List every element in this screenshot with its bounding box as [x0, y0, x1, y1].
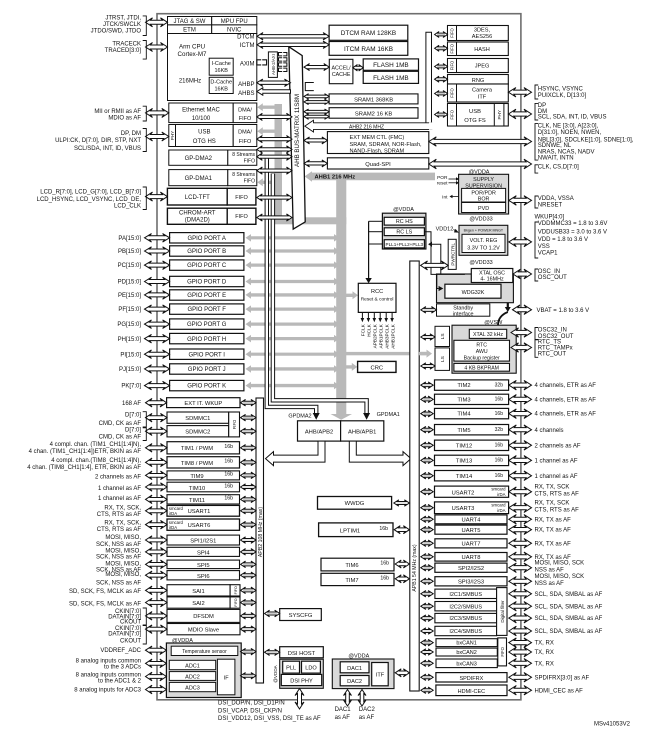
svg-text:I2C3/SMBUS: I2C3/SMBUS [449, 616, 482, 622]
svg-text:NSS as AF: NSS as AF [535, 581, 565, 587]
svg-text:FIFO: FIFO [234, 586, 238, 594]
svg-text:SDMMC2: SDMMC2 [185, 430, 210, 436]
svg-text:HASH: HASH [474, 47, 490, 53]
svg-text:CMD, CK as AF: CMD, CK as AF [99, 421, 142, 427]
svg-text:DAC1: DAC1 [335, 707, 352, 713]
svg-text:CHROM-ART: CHROM-ART [179, 211, 216, 217]
svg-text:PE[15:0]: PE[15:0] [118, 293, 141, 299]
svg-text:SCK, NSS as AF: SCK, NSS as AF [96, 555, 141, 561]
svg-text:@VDDA: @VDDA [393, 207, 414, 213]
svg-text:PVD: PVD [478, 206, 489, 212]
svg-text:JTRST, JTDI,: JTRST, JTDI, [105, 15, 141, 21]
svg-text:TIM8 / PWM: TIM8 / PWM [181, 461, 213, 467]
svg-text:ACCEL/: ACCEL/ [332, 65, 352, 71]
svg-text:USART6: USART6 [188, 523, 211, 529]
svg-text:4 channels, ETR as AF: 4 channels, ETR as AF [535, 398, 597, 404]
svg-text:16KB: 16KB [214, 87, 228, 93]
svg-text:GPDMA2: GPDMA2 [288, 413, 311, 419]
svg-text:DSI_VDD12, DSI_VSS, DSI_TE as: DSI_VDD12, DSI_VSS, DSI_TE as AF [218, 716, 321, 722]
svg-text:ADC3: ADC3 [185, 686, 200, 692]
svg-text:SCL, SDA, INT, ID, VBUS: SCL, SDA, INT, ID, VBUS [538, 114, 607, 120]
svg-text:VBAT = 1.8 to 3.6 V: VBAT = 1.8 to 3.6 V [537, 308, 590, 314]
svg-text:PI[15:0]: PI[15:0] [120, 352, 141, 358]
svg-text:JTDO/SWD, JTDO: JTDO/SWD, JTDO [91, 28, 142, 34]
svg-text:SRAM1 368KB: SRAM1 368KB [354, 97, 393, 103]
svg-text:VDDREF_ADC: VDDREF_ADC [100, 648, 141, 654]
svg-text:RX, TX, SCK,: RX, TX, SCK, [104, 506, 141, 512]
svg-text:MOSI, MISO,: MOSI, MISO, [105, 561, 141, 567]
svg-text:16b: 16b [495, 411, 504, 417]
svg-text:TIM12: TIM12 [456, 443, 472, 449]
svg-text:PH[15:0]: PH[15:0] [118, 337, 142, 343]
svg-text:FLASH 1MB: FLASH 1MB [373, 75, 409, 82]
svg-text:USART3: USART3 [452, 506, 475, 512]
svg-text:Int: Int [442, 194, 448, 200]
svg-text:Ethernet MAC: Ethernet MAC [182, 108, 220, 114]
svg-text:MOSI, MISO, SCK: MOSI, MISO, SCK [535, 561, 585, 567]
svg-text:FIFO: FIFO [239, 139, 252, 145]
svg-text:16b: 16b [495, 473, 504, 479]
svg-text:WDG32K: WDG32K [462, 290, 485, 296]
svg-text:GP-DMA2: GP-DMA2 [185, 156, 213, 162]
svg-text:SCL, SDA, SMBAL as AF: SCL, SDA, SMBAL as AF [535, 592, 603, 598]
svg-text:1 channel as AF: 1 channel as AF [535, 459, 578, 465]
svg-text:GPIO PORT A: GPIO PORT A [187, 236, 225, 242]
svg-text:SYSCFG: SYSCFG [289, 613, 313, 619]
svg-text:16b: 16b [495, 443, 504, 449]
svg-text:ITCM RAM 16KB: ITCM RAM 16KB [344, 46, 393, 53]
svg-text:16KB: 16KB [214, 68, 228, 74]
svg-text:TRACECK: TRACECK [112, 41, 141, 47]
svg-text:CACHE: CACHE [332, 72, 351, 78]
svg-text:DSI_VCAP, DSI_CKP/N: DSI_VCAP, DSI_CKP/N [218, 708, 282, 714]
svg-text:PJ[15:0]: PJ[15:0] [119, 367, 141, 373]
svg-text:3DES,: 3DES, [474, 28, 491, 34]
svg-text:PB[15:0]: PB[15:0] [118, 249, 141, 255]
svg-text:SPI6: SPI6 [197, 574, 210, 580]
svg-text:AWU: AWU [476, 349, 488, 355]
svg-text:GPDMA1: GPDMA1 [377, 412, 400, 418]
svg-text:SCK, NSS as AF: SCK, NSS as AF [96, 580, 141, 586]
svg-text:USB: USB [198, 130, 210, 136]
svg-text:reset: reset [437, 180, 448, 186]
svg-text:MOSI, MISO,: MOSI, MISO, [105, 548, 141, 554]
svg-text:SRAM, SDRAM, NOR-Flash,: SRAM, SDRAM, NOR-Flash, [350, 142, 423, 148]
svg-text:irDA: irDA [497, 492, 505, 497]
svg-text:AHBS: AHBS [238, 91, 254, 97]
svg-text:AHB/APB2: AHB/APB2 [305, 429, 333, 435]
svg-text:VDD12: VDD12 [436, 227, 454, 233]
svg-text:DMA/: DMA/ [238, 108, 252, 114]
svg-text:TIM13: TIM13 [456, 459, 472, 465]
svg-text:SAI1: SAI1 [192, 589, 205, 595]
svg-text:AHB-2/AXI: AHB-2/AXI [271, 54, 276, 75]
svg-text:CTS, RTS as AF: CTS, RTS as AF [97, 527, 142, 533]
svg-text:irDA: irDA [169, 511, 177, 516]
svg-text:OSC32_IN: OSC32_IN [538, 328, 567, 334]
svg-text:4 chan. (TIM8_CH1[1:4], ETR, B: 4 chan. (TIM8_CH1[1:4], ETR, BKIN as AF [27, 465, 141, 471]
svg-text:MOSI, MISO,: MOSI, MISO, [105, 535, 141, 541]
svg-text:I2C2/SMBUS: I2C2/SMBUS [449, 604, 482, 610]
svg-text:TIM7: TIM7 [345, 578, 358, 584]
svg-text:4 KB BKPRAM: 4 KB BKPRAM [464, 365, 499, 371]
svg-text:RX, TX as AF: RX, TX as AF [535, 517, 572, 523]
svg-text:FIFO: FIFO [244, 178, 255, 184]
svg-text:PHY: PHY [170, 131, 175, 140]
svg-text:SCL, SDA, SMBAL as AF: SCL, SDA, SMBAL as AF [535, 616, 603, 622]
svg-text:10/100: 10/100 [192, 116, 211, 122]
svg-text:4- 16MHz: 4- 16MHz [480, 277, 504, 283]
svg-text:FIFO: FIFO [500, 646, 505, 656]
svg-text:Digital filter: Digital filter [500, 600, 505, 623]
svg-text:as AF: as AF [359, 715, 375, 721]
svg-text:DSI PHY: DSI PHY [290, 679, 313, 685]
svg-text:FIFO: FIFO [450, 60, 455, 70]
svg-text:PF[15:0]: PF[15:0] [118, 307, 141, 313]
svg-text:16b: 16b [379, 526, 388, 532]
svg-text:LCD_HSYNC, LCD_VSYNC, LCD_DE,: LCD_HSYNC, LCD_VSYNC, LCD_DE, [37, 197, 142, 203]
svg-text:MDIO Slave: MDIO Slave [188, 628, 219, 634]
svg-text:1 channel as AF: 1 channel as AF [535, 474, 578, 480]
svg-text:DAC2: DAC2 [359, 707, 376, 713]
svg-text:Camera: Camera [472, 87, 493, 93]
svg-text:CRC: CRC [371, 366, 384, 372]
svg-text:AHB/APB1: AHB/APB1 [348, 429, 376, 435]
svg-text:UART5: UART5 [462, 528, 481, 534]
svg-text:Backup register: Backup register [464, 355, 500, 361]
svg-text:TIM14: TIM14 [456, 474, 473, 480]
svg-text:DSI HOST: DSI HOST [288, 651, 316, 657]
svg-text:HCLK: HCLK [367, 323, 372, 336]
svg-text:UART7: UART7 [462, 541, 481, 547]
svg-text:Temperature sensor: Temperature sensor [182, 649, 227, 655]
svg-text:16b: 16b [224, 459, 233, 465]
svg-text:VDD = 1.8 to 3.6 V: VDD = 1.8 to 3.6 V [538, 237, 588, 243]
svg-text:VCAP1: VCAP1 [538, 251, 558, 257]
svg-text:2 channels as AF: 2 channels as AF [95, 475, 141, 481]
svg-text:GPIO PORT B: GPIO PORT B [187, 249, 226, 255]
svg-text:1 channel as AF: 1 channel as AF [98, 496, 141, 502]
svg-text:LS: LS [440, 356, 446, 362]
svg-text:TIM4: TIM4 [457, 412, 471, 418]
svg-text:CKOUT: CKOUT [120, 638, 141, 644]
svg-text:JTAG & SW: JTAG & SW [174, 19, 206, 25]
svg-text:APB2PCLK: APB2PCLK [373, 323, 378, 348]
svg-text:XTAL OSC: XTAL OSC [479, 270, 505, 276]
svg-text:16b: 16b [495, 397, 504, 403]
svg-text:GPIO PORT J: GPIO PORT J [188, 367, 226, 373]
svg-text:USB: USB [469, 109, 481, 115]
svg-text:I2C1/SMBUS: I2C1/SMBUS [449, 592, 482, 598]
svg-text:PUIXCLK, D[13:0]: PUIXCLK, D[13:0] [538, 93, 587, 99]
svg-text:8 Streams: 8 Streams [232, 172, 255, 178]
svg-text:ETM: ETM [183, 28, 196, 34]
svg-text:PD[15:0]: PD[15:0] [118, 280, 142, 286]
svg-text:PLL: PLL [286, 666, 296, 672]
svg-text:PG[15:0]: PG[15:0] [117, 322, 141, 328]
svg-text:SAI2: SAI2 [192, 601, 205, 607]
svg-text:as AF: as AF [335, 715, 351, 721]
svg-text:NAND-Flash, SDRAM: NAND-Flash, SDRAM [350, 148, 405, 154]
svg-text:3.3V TO 1.2V: 3.3V TO 1.2V [467, 245, 500, 251]
svg-text:bxCAN3: bxCAN3 [456, 661, 476, 667]
svg-text:SCL/SDA, INT, ID, VBUS: SCL/SDA, INT, ID, VBUS [74, 146, 141, 152]
svg-text:16b: 16b [380, 561, 389, 567]
svg-text:irDA: irDA [497, 508, 505, 513]
svg-text:WWDG: WWDG [345, 501, 365, 507]
svg-text:EXT IT. WKUP: EXT IT. WKUP [184, 401, 222, 407]
svg-text:FCLK: FCLK [361, 323, 366, 336]
svg-text:NSS as AF: NSS as AF [535, 567, 565, 573]
svg-text:AHB3PCLK: AHB3PCLK [384, 323, 389, 348]
svg-text:ITF: ITF [376, 673, 385, 679]
svg-text:NWAIT, INTN: NWAIT, INTN [538, 155, 574, 161]
svg-text:SCL, SDA, SMBAL as AF: SCL, SDA, SMBAL as AF [535, 629, 603, 635]
svg-text:LCD-TFT: LCD-TFT [185, 195, 210, 201]
svg-text:TIM10: TIM10 [189, 486, 205, 492]
svg-text:GPIO PORT E: GPIO PORT E [187, 293, 226, 299]
svg-text:Reset & control: Reset & control [361, 297, 394, 303]
svg-text:Quad-SPI: Quad-SPI [365, 162, 391, 168]
svg-text:MOSI, MISO,: MOSI, MISO, [105, 572, 141, 578]
svg-text:TX, RX: TX, RX [535, 641, 554, 647]
svg-text:DAC2: DAC2 [347, 679, 362, 685]
svg-text:TIM2: TIM2 [457, 383, 470, 389]
svg-text:ADC2: ADC2 [185, 674, 200, 680]
svg-text:AES256: AES256 [472, 34, 493, 40]
svg-text:16b: 16b [224, 444, 233, 450]
svg-text:DATAIN[7:0]: DATAIN[7:0] [108, 631, 141, 637]
svg-text:16b: 16b [224, 484, 233, 490]
svg-text:PLL1+PLL2+PLL3: PLL1+PLL2+PLL3 [386, 242, 424, 247]
svg-text:smcard: smcard [491, 486, 506, 491]
svg-text:ULPI:CK, D[7:0], DIR, STP, NXT: ULPI:CK, D[7:0], DIR, STP, NXT [55, 138, 141, 144]
svg-text:SPI4: SPI4 [197, 550, 210, 556]
svg-text:AHB2 216 MHZ: AHB2 216 MHZ [349, 125, 384, 131]
svg-text:SDMMC1: SDMMC1 [185, 416, 210, 422]
svg-text:1 channel as AF: 1 channel as AF [98, 486, 141, 492]
svg-text:SPDIFRX: SPDIFRX [459, 676, 483, 682]
svg-text:8 analog inputs common: 8 analog inputs common [76, 659, 141, 665]
svg-text:SCL, SDA, SMBAL as AF: SCL, SDA, SMBAL as AF [535, 604, 603, 610]
svg-text:irDA: irDA [169, 525, 177, 530]
svg-text:FIFO: FIFO [450, 27, 455, 37]
svg-text:LDO: LDO [305, 666, 317, 672]
svg-text:AHBP: AHBP [238, 82, 254, 88]
svg-text:SPI5: SPI5 [197, 563, 210, 569]
svg-text:GPIO PORT I: GPIO PORT I [188, 352, 225, 358]
svg-text:16b: 16b [224, 496, 233, 502]
svg-text:CTS, RTS as AF: CTS, RTS as AF [97, 512, 142, 518]
svg-text:@VDDA: @VDDA [273, 664, 278, 682]
svg-text:SDNWE, NL: SDNWE, NL [538, 143, 572, 149]
svg-text:4 chan. (TIM1_CH1[1:4])ETR, BK: 4 chan. (TIM1_CH1[1:4])ETR, BKIN as AF [29, 449, 142, 455]
svg-text:RX, TX as AF: RX, TX as AF [535, 528, 572, 534]
svg-text:FIFO: FIFO [235, 195, 248, 201]
svg-text:ITF: ITF [478, 95, 487, 101]
svg-text:RNG: RNG [472, 78, 484, 84]
svg-text:SPI3/I2S3: SPI3/I2S3 [458, 579, 484, 585]
svg-text:RX, TX as AF: RX, TX as AF [535, 541, 572, 547]
svg-text:4 compl. chan.(TIM8_CH1[1:4]N): 4 compl. chan.(TIM8_CH1[1:4]N), [51, 458, 141, 464]
svg-text:PA[15:0]: PA[15:0] [118, 236, 141, 242]
svg-text:APB2 108 MHz (max): APB2 108 MHz (max) [258, 507, 264, 557]
svg-text:USART2: USART2 [452, 490, 475, 496]
svg-text:XTAL 32 kHz: XTAL 32 kHz [473, 332, 503, 338]
svg-text:FIFO: FIFO [239, 116, 252, 122]
svg-text:MII or RMII as AF: MII or RMII as AF [94, 109, 141, 115]
svg-text:POR/PDR: POR/PDR [471, 190, 496, 196]
svg-text:AHB1 216 MHz: AHB1 216 MHz [315, 175, 356, 181]
svg-text:POR: POR [437, 175, 448, 181]
svg-text:4 compl. chan. (TIM1_CH1[1:4]N: 4 compl. chan. (TIM1_CH1[1:4]N), [50, 442, 142, 448]
svg-text:8 Streams: 8 Streams [232, 152, 255, 158]
svg-text:to the ADC1 & 2: to the ADC1 & 2 [98, 679, 142, 685]
svg-text:bxCAN2: bxCAN2 [456, 650, 476, 656]
svg-text:GP-DMA1: GP-DMA1 [185, 176, 213, 182]
svg-text:USART1: USART1 [188, 509, 211, 515]
svg-text:FIFO: FIFO [450, 43, 455, 53]
svg-text:TRACED[3:0]: TRACED[3:0] [105, 48, 142, 54]
svg-text:smcard: smcard [491, 502, 506, 507]
svg-text:D[7:0]: D[7:0] [125, 427, 141, 433]
svg-text:FIFO: FIFO [244, 158, 255, 164]
svg-text:IF: IF [224, 675, 230, 681]
svg-text:HDMI-CEC: HDMI-CEC [458, 689, 486, 695]
svg-text:RX, TX, SCK: RX, TX, SCK [535, 485, 570, 491]
svg-text:GPIO PORT K: GPIO PORT K [187, 384, 226, 390]
svg-text:FIFO: FIFO [232, 419, 237, 429]
svg-text:DTCM RAM 128KB: DTCM RAM 128KB [341, 30, 396, 37]
svg-text:MSv41053V2: MSv41053V2 [594, 722, 631, 728]
svg-text:216MHz: 216MHz [179, 78, 201, 84]
svg-text:RX, TX, SCK,: RX, TX, SCK, [104, 520, 141, 526]
svg-text:@VDD33: @VDD33 [469, 260, 492, 266]
svg-text:RX, TX, SCK: RX, TX, SCK [535, 501, 570, 507]
svg-text:Cortex-M7: Cortex-M7 [178, 51, 207, 58]
svg-text:UART4: UART4 [462, 517, 482, 523]
svg-text:VDDMMC33 = 1.8 to 3.6V: VDDMMC33 = 1.8 to 3.6V [538, 221, 608, 227]
svg-text:LCD_CLK: LCD_CLK [114, 204, 141, 210]
svg-text:Bkgen + POWER MNGT: Bkgen + POWER MNGT [464, 228, 504, 232]
svg-text:SD, SCK, FS, MCLK as AF: SD, SCK, FS, MCLK as AF [69, 589, 141, 595]
svg-text:16b: 16b [224, 472, 233, 478]
svg-text:168 AF: 168 AF [122, 401, 141, 407]
svg-text:16b: 16b [380, 576, 389, 582]
svg-text:ADC1: ADC1 [185, 663, 200, 669]
svg-text:FIFO: FIFO [234, 598, 238, 606]
svg-text:SRAM2 16 KB: SRAM2 16 KB [355, 111, 393, 117]
svg-text:EXT MEM CTL (FMC): EXT MEM CTL (FMC) [350, 135, 405, 141]
svg-text:to the 3 ADCs: to the 3 ADCs [104, 665, 141, 671]
svg-text:MOSI, MISO, SCK: MOSI, MISO, SCK [535, 574, 585, 580]
svg-text:FIFO: FIFO [235, 214, 248, 220]
svg-text:AHB BUS-MATRIX 11S8M: AHB BUS-MATRIX 11S8M [294, 94, 301, 167]
svg-text:PK[7:0]: PK[7:0] [121, 384, 141, 390]
svg-text:SD, SCK, FS, MCLK as AF: SD, SCK, FS, MCLK as AF [69, 601, 141, 607]
svg-text:I2C4/SMBUS: I2C4/SMBUS [449, 629, 482, 635]
svg-text:LPTIM1: LPTIM1 [340, 528, 360, 534]
svg-text:NRAS, NCAS, NADV: NRAS, NCAS, NADV [538, 149, 595, 155]
svg-text:VDDUSB33 = 3.0 to 3.6 V: VDDUSB33 = 3.0 to 3.6 V [538, 230, 607, 236]
svg-text:APB1PCLK: APB1PCLK [378, 323, 383, 348]
svg-text:JTCK/SWCLK: JTCK/SWCLK [103, 22, 141, 28]
svg-text:32b: 32b [495, 427, 504, 433]
svg-text:32b: 32b [495, 382, 504, 388]
svg-text:RC HS: RC HS [396, 219, 413, 225]
svg-text:PHY: PHY [497, 110, 502, 119]
svg-text:Arm CPU: Arm CPU [179, 44, 205, 51]
svg-text:interface: interface [453, 311, 474, 317]
svg-text:DMA/: DMA/ [238, 130, 252, 136]
svg-text:SCK, NSS as AF: SCK, NSS as AF [96, 542, 141, 548]
svg-text:ICTM: ICTM [240, 43, 255, 49]
svg-text:VDDA, VSSA: VDDA, VSSA [538, 196, 574, 202]
svg-text:CMD, CK as AF: CMD, CK as AF [99, 434, 142, 440]
svg-text:GPIO PORT F: GPIO PORT F [187, 307, 226, 313]
svg-text:PWRCTRL: PWRCTRL [451, 243, 456, 266]
svg-text:AHB1PCLK: AHB1PCLK [390, 323, 395, 348]
svg-text:D[7:0]: D[7:0] [125, 413, 141, 419]
svg-text:WKUP[4:0]: WKUP[4:0] [535, 215, 565, 221]
svg-text:MDIO as AF: MDIO as AF [108, 115, 141, 121]
svg-text:HSYNC, VSYNC: HSYNC, VSYNC [538, 87, 584, 93]
svg-text:TIM9: TIM9 [190, 474, 203, 480]
svg-text:TIM3: TIM3 [457, 398, 470, 404]
svg-text:NRESET: NRESET [538, 203, 563, 209]
svg-text:RTC_TS: RTC_TS [538, 340, 561, 346]
svg-text:MPU FPU: MPU FPU [221, 19, 248, 25]
svg-text:bxCAN1: bxCAN1 [456, 641, 476, 647]
svg-text:SPI1/I2S1: SPI1/I2S1 [190, 539, 216, 545]
svg-text:JPEG: JPEG [475, 64, 490, 70]
svg-text:UART8: UART8 [462, 555, 481, 561]
svg-text:DP, DM: DP, DM [121, 131, 141, 137]
svg-text:SPI2/I2S2: SPI2/I2S2 [458, 566, 484, 572]
svg-text:GPIO PORT C: GPIO PORT C [187, 263, 227, 269]
svg-text:AXIM: AXIM [240, 62, 255, 68]
svg-text:D-Cache: D-Cache [210, 80, 232, 86]
svg-text:FLASH 1MB: FLASH 1MB [373, 62, 409, 69]
svg-text:TX, RX: TX, RX [535, 650, 554, 656]
svg-text:VOLT. REG: VOLT. REG [470, 238, 498, 244]
svg-text:CLK, CS,D[7:0]: CLK, CS,D[7:0] [538, 164, 579, 170]
svg-text:CTS, RTS as AF: CTS, RTS as AF [535, 491, 580, 497]
svg-text:CLK, NE [3:0], A[23:0],: CLK, NE [3:0], A[23:0], [538, 123, 599, 129]
svg-text:APB1 54 MHz (max): APB1 54 MHz (max) [412, 544, 418, 592]
svg-text:DAC1: DAC1 [347, 666, 362, 672]
svg-text:BOR: BOR [478, 197, 490, 203]
svg-text:SUPPLY: SUPPLY [473, 177, 494, 183]
svg-text:RCC: RCC [371, 289, 383, 295]
svg-text:8 analog inputs for ADC3: 8 analog inputs for ADC3 [74, 688, 141, 694]
svg-text:NVIC: NVIC [227, 28, 242, 34]
svg-text:DSI_DOP/N, DSI_D1P/N: DSI_DOP/N, DSI_D1P/N [218, 701, 285, 707]
svg-text:FIFO: FIFO [450, 87, 455, 97]
svg-text:OSC_OUT: OSC_OUT [538, 275, 567, 281]
svg-text:TIM1 / PWM: TIM1 / PWM [181, 446, 213, 452]
svg-text:PC[15:0]: PC[15:0] [118, 263, 142, 269]
svg-text:(DMA2D): (DMA2D) [185, 218, 210, 224]
svg-text:DFSDM: DFSDM [193, 614, 214, 620]
svg-text:DTCM: DTCM [237, 35, 254, 41]
svg-text:LS: LS [440, 333, 446, 339]
svg-text:I-Cache: I-Cache [212, 61, 231, 67]
svg-text:OTG HS: OTG HS [193, 139, 216, 145]
svg-text:16b: 16b [495, 458, 504, 464]
svg-text:2 channels as AF: 2 channels as AF [535, 443, 581, 449]
svg-text:OTG FS: OTG FS [464, 118, 486, 124]
